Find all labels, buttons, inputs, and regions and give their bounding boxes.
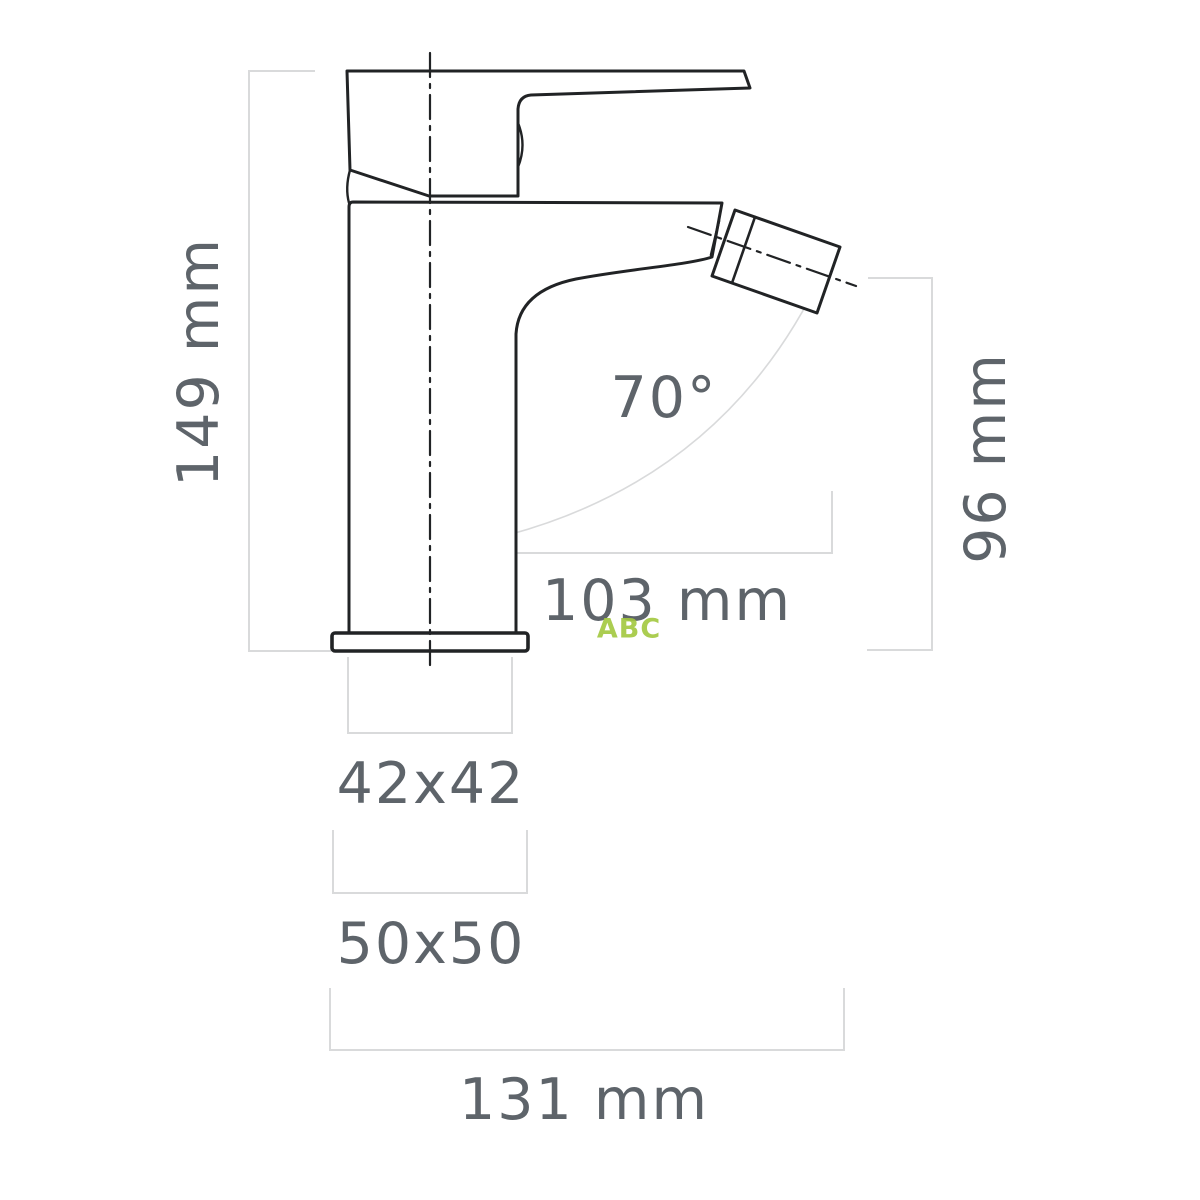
faucet-nozzle [712, 210, 840, 313]
faucet-outline-group [332, 53, 856, 668]
faucet-diagram-svg [0, 0, 1200, 1200]
faucet-handle [347, 71, 750, 196]
dim-bracket-base-section [333, 830, 527, 893]
dim-bracket-body-section [348, 657, 512, 733]
handle-base-arc [347, 170, 350, 203]
dim-bracket-outlet-height [867, 278, 932, 650]
dim-bracket-overall-height [249, 71, 331, 651]
technical-drawing-canvas: 149 mm 70° 96 mm 103 mm 42x42 50x50 131 … [0, 0, 1200, 1200]
dim-bracket-overall-depth [330, 988, 844, 1050]
watermark-text: ABC [597, 614, 661, 645]
faucet-body [349, 202, 722, 633]
